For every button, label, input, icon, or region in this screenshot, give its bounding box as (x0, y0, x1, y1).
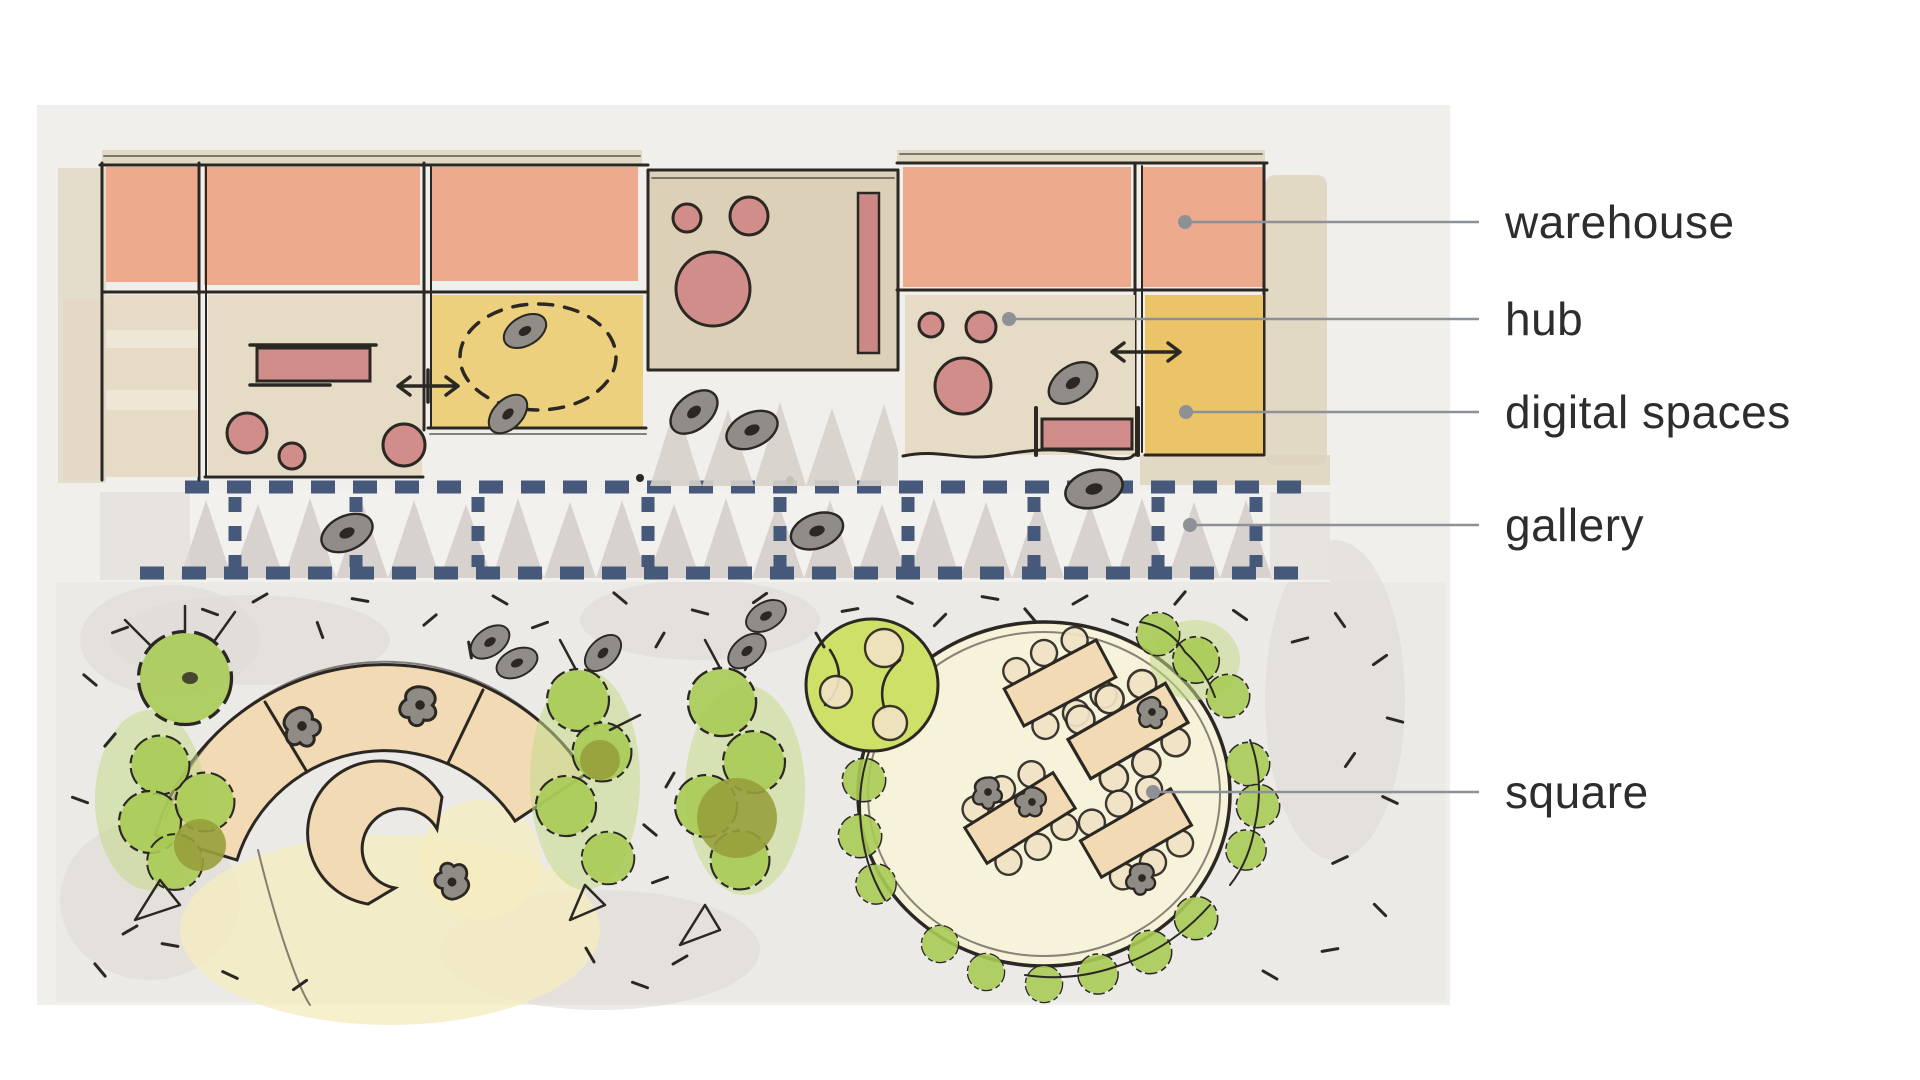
anchor-dot-warehouse (1178, 215, 1192, 229)
label-digital-spaces: digital spaces (1505, 386, 1791, 438)
middle-building (648, 170, 898, 370)
label-warehouse: warehouse (1504, 196, 1735, 248)
shrub (174, 819, 226, 871)
label-hub: hub (1505, 293, 1583, 345)
seat-circle (279, 443, 305, 469)
anchor-dot-square (1146, 785, 1160, 799)
anchor-dot-hub (1002, 312, 1016, 326)
exhibit-table (1042, 419, 1132, 449)
pink-wall (858, 193, 879, 353)
pink-circle (673, 204, 701, 232)
pink-circle (730, 197, 768, 235)
pink-circle (966, 312, 996, 342)
seat-circle (227, 413, 267, 453)
site-plan-sketch: warehouse hub digital spaces gallery squ… (0, 0, 1920, 1080)
pink-circle (935, 358, 991, 414)
left-room (106, 295, 425, 477)
seat-circle (383, 424, 425, 466)
shrub (580, 740, 620, 780)
anchor-dot-digital-spaces (1179, 405, 1193, 419)
label-square: square (1505, 766, 1649, 818)
site-plan-sketch-page: warehouse hub digital spaces gallery squ… (0, 0, 1920, 1080)
shrub (697, 778, 777, 858)
pink-circle (676, 252, 750, 326)
label-gallery: gallery (1505, 499, 1644, 551)
anchor-dot-gallery (1183, 518, 1197, 532)
pink-circle (919, 313, 943, 337)
exhibit-table (257, 348, 370, 381)
lime-tree-circle (806, 619, 938, 751)
left-yellow-room (428, 295, 646, 440)
